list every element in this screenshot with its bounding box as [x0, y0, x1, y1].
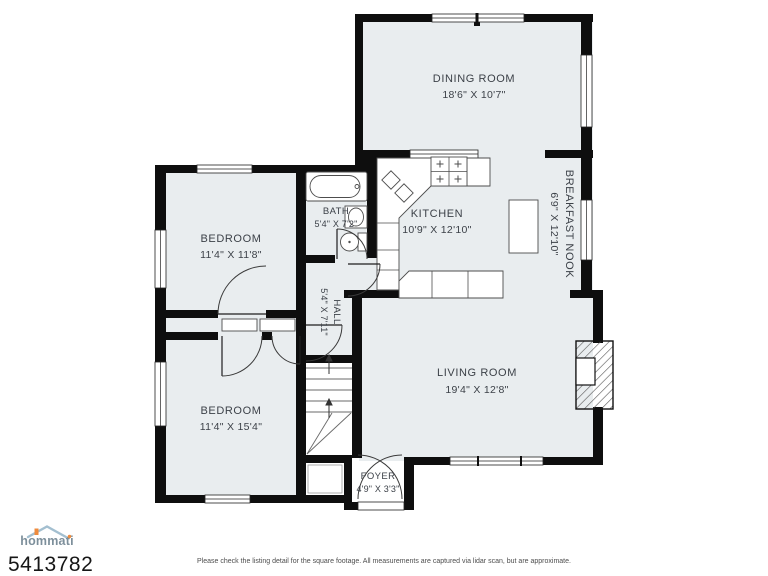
kitchen-label: KITCHEN	[411, 208, 463, 220]
window-bedroom1-left	[155, 230, 166, 288]
foyer-label: FOYER	[361, 471, 396, 482]
bathtub	[306, 172, 367, 201]
dining-floor	[359, 18, 593, 154]
listing-id: 5413782	[8, 553, 93, 576]
bedroom2-label: BEDROOM	[200, 405, 261, 417]
hall-label: HALL	[331, 299, 342, 324]
living-room-dims: 19'4" X 12'8"	[445, 384, 508, 396]
bedroom1-label: BEDROOM	[200, 233, 261, 245]
brand-logo: hommati	[20, 527, 74, 549]
window-nook-right	[581, 200, 592, 260]
fireplace	[576, 341, 613, 409]
window-bedroom2-left	[155, 362, 166, 426]
window-bedroom1-top	[197, 165, 252, 173]
front-door-slab	[358, 502, 404, 510]
dining-room-label: DINING ROOM	[433, 73, 515, 85]
brand-name: hommati	[20, 534, 74, 548]
breakfast-nook-label: BREAKFAST NOOK	[563, 170, 575, 279]
bedroom1-dims: 11'4" X 11'8"	[200, 249, 262, 261]
kitchen-peninsula	[399, 271, 503, 298]
window-dining-top	[432, 13, 524, 23]
island	[509, 200, 538, 253]
window-dining-right	[581, 55, 592, 127]
disclaimer-text: Please check the listing detail for the …	[197, 558, 571, 565]
bath-dims: 5'4" X 7'2"	[314, 219, 357, 229]
window-bedroom2-bottom	[205, 495, 250, 503]
foyer-dims: 4'9" X 3'3"	[356, 484, 399, 494]
window-living-bottom	[450, 456, 543, 466]
dining-room-dims: 18'6" X 10'7"	[442, 89, 505, 101]
toilet	[341, 233, 368, 251]
floor-plan-canvas: DINING ROOM 18'6" X 10'7" KITCHEN 10'9" …	[0, 0, 768, 576]
brand-accent-dot	[68, 535, 71, 538]
hall-dims: 5'4" X 7'11"	[319, 288, 329, 336]
breakfast-nook-dims: 6'9" X 12'10"	[548, 192, 560, 255]
living-room-label: LIVING ROOM	[437, 367, 517, 379]
bedroom2-dims: 11'4" X 15'4"	[200, 421, 262, 433]
stove	[431, 157, 467, 186]
kitchen-dims: 10'9" X 12'10"	[402, 224, 471, 236]
bath-label: BATH	[323, 206, 349, 217]
